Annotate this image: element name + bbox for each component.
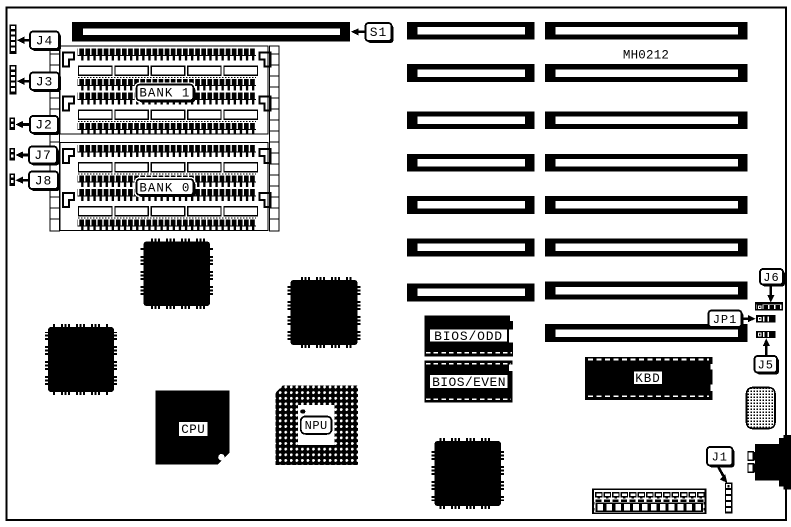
svg-text:MH0212: MH0212	[623, 49, 669, 63]
svg-text:BIOS/EVEN: BIOS/EVEN	[432, 375, 506, 390]
svg-text:JP1: JP1	[713, 313, 738, 327]
svg-text:KBD: KBD	[635, 372, 661, 386]
svg-text:BANK 0: BANK 0	[139, 181, 190, 195]
svg-text:NPU: NPU	[305, 419, 328, 433]
svg-text:BIOS/ODD: BIOS/ODD	[434, 329, 503, 344]
svg-text:J2: J2	[35, 118, 53, 133]
svg-text:J5: J5	[758, 358, 774, 372]
svg-text:J6: J6	[763, 271, 779, 285]
svg-text:J4: J4	[36, 34, 54, 49]
svg-text:J8: J8	[35, 173, 53, 188]
svg-text:J7: J7	[34, 148, 52, 163]
svg-text:J1: J1	[712, 450, 728, 464]
svg-text:J3: J3	[36, 75, 54, 90]
svg-text:CPU: CPU	[181, 423, 205, 437]
svg-text:BANK 1: BANK 1	[139, 87, 190, 101]
svg-text:S1: S1	[370, 25, 388, 40]
